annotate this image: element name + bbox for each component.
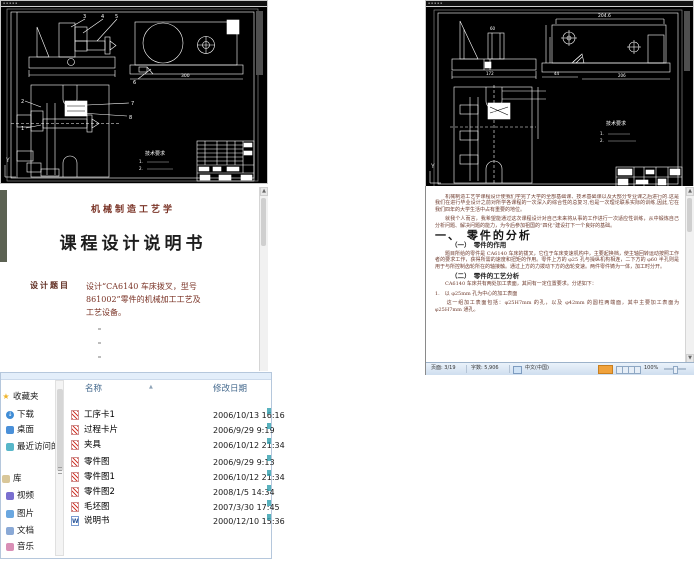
divider bbox=[509, 365, 510, 373]
assembly-drawing-canvas[interactable]: 3 4 5 6 2 1 7 8 300 技术要求 1. 2. Y bbox=[1, 7, 267, 184]
balloon-4: 4 bbox=[101, 14, 104, 20]
file-row[interactable]: 零件图12006/10/12 21:34 bbox=[65, 470, 265, 485]
documents-icon bbox=[6, 527, 14, 535]
list-item: 1. 以 φ25mm 孔为中心的加工表面 bbox=[435, 291, 679, 297]
music-icon bbox=[6, 543, 14, 551]
dim-60: 60 bbox=[490, 26, 496, 31]
word-cover-window[interactable]: 机械制造工艺学 课程设计说明书 设计题目 设计“CA6140 车床拨叉，型号 8… bbox=[0, 186, 268, 372]
part-drawing-canvas[interactable]: 60 204.6 172 44 206 技术要求 1. 2. Y bbox=[426, 7, 693, 190]
paragraph: 这一组加工表面包括：φ25H7mm 的孔，以及 φ42mm 的圆柱两端面，其中主… bbox=[435, 300, 679, 313]
file-name: 零件图 bbox=[84, 455, 110, 470]
dim-172: 172 bbox=[486, 71, 494, 76]
star-icon: ★ bbox=[2, 393, 10, 401]
explorer-toolbar-edge bbox=[1, 373, 271, 380]
topic-label: 设计题目 bbox=[30, 280, 86, 319]
file-row[interactable]: 夹具2006/10/12 21:34 bbox=[65, 438, 265, 453]
sort-caret-icon: ▲ bbox=[149, 384, 153, 390]
file-row[interactable]: W说明书2000/12/10 15:36 bbox=[65, 514, 265, 529]
tech-req-item-2: 2. bbox=[139, 166, 143, 171]
paragraph: 就我个人而言，我希望能通过这次课程设计对自己未来将从事的工作进行一次适应性训练，… bbox=[435, 216, 679, 229]
cad-window-part[interactable]: ▪▪▪▪▪ bbox=[425, 0, 694, 190]
download-icon: ↓ bbox=[6, 411, 14, 419]
explorer-file-list: 名称 ▲ 修改日期 工序卡12006/10/13 16:16 过程卡片2006/… bbox=[65, 380, 265, 556]
balloon-3: 3 bbox=[83, 14, 86, 20]
divider bbox=[466, 365, 467, 373]
paragraph-mark bbox=[98, 314, 101, 316]
tech-req-item-1: 1. bbox=[600, 131, 604, 136]
cad-file-icon bbox=[71, 440, 79, 450]
course-title: 机械制造工艺学 bbox=[10, 202, 256, 215]
explorer-sidebar: ★收藏夹 ↓下载 桌面 最近访问的位置 库 视频 图片 文档 音乐 bbox=[1, 380, 55, 556]
balloon-5: 5 bbox=[115, 14, 118, 20]
topic-line-1: 设计“CA6140 车床拨叉，型号 bbox=[86, 280, 246, 293]
file-date: 2008/1/5 14:34 bbox=[213, 485, 275, 500]
sidebar-scroll-thumb[interactable] bbox=[57, 389, 63, 471]
dim-206: 206 bbox=[618, 73, 626, 78]
scroll-thumb[interactable] bbox=[261, 198, 266, 246]
cad-scrollbar[interactable] bbox=[684, 11, 690, 71]
topic-line-3: 工艺设备。 bbox=[86, 306, 246, 319]
file-name: 零件图2 bbox=[84, 485, 115, 500]
topic-text: 设计“CA6140 车床拨叉，型号 861002”零件的机械加工工艺及 工艺设备… bbox=[86, 280, 246, 319]
sidebar-item-desktop[interactable]: 桌面 bbox=[5, 423, 59, 437]
heading-1: 一、 零件的分析 bbox=[435, 233, 679, 239]
desktop-icon bbox=[6, 426, 14, 434]
word-app-background bbox=[0, 190, 7, 262]
cad-file-icon bbox=[71, 487, 79, 497]
paragraph-mark bbox=[98, 356, 101, 358]
paragraph-mark bbox=[98, 328, 101, 330]
balloon-2: 2 bbox=[21, 99, 24, 105]
recent-places-icon bbox=[6, 443, 14, 451]
title-block bbox=[197, 141, 254, 181]
ucs-y-label: Y bbox=[5, 157, 10, 164]
column-header-date-modified[interactable]: 修改日期 bbox=[213, 382, 247, 396]
library-icon bbox=[2, 475, 10, 483]
sidebar-item-videos[interactable]: 视频 bbox=[5, 489, 59, 503]
scroll-thumb[interactable] bbox=[687, 198, 692, 232]
tech-req-title: 技术要求 bbox=[145, 150, 165, 157]
sidebar-item-recent-places[interactable]: 最近访问的位置 bbox=[5, 440, 59, 454]
videos-icon bbox=[6, 492, 14, 500]
document-page: 机械制造工艺学课程设计使我们学完了大学的全部基础课、技术基础课以及大部分专业课之… bbox=[435, 194, 679, 361]
vertical-scrollbar[interactable]: ▲ ▼ bbox=[685, 187, 694, 363]
sidebar-item-libraries[interactable]: 库 bbox=[1, 472, 55, 486]
file-row[interactable]: 过程卡片2006/9/29 9:19 bbox=[65, 423, 265, 438]
paragraph: 题目所给的零件是 CA6140 车床的拨叉，它位于车床变速机构中，主要起换档，使… bbox=[435, 251, 679, 270]
file-date: 2006/9/29 9:13 bbox=[213, 455, 275, 470]
pictures-icon bbox=[6, 510, 14, 518]
view-outline-icon[interactable] bbox=[634, 366, 641, 374]
sidebar-item-music[interactable]: 音乐 bbox=[5, 540, 59, 554]
file-name: 过程卡片 bbox=[84, 423, 118, 438]
paragraph: CA6140 车床共有两处加工表面，其间有一定位置要求。分述如下： bbox=[435, 281, 679, 287]
file-name: 零件图1 bbox=[84, 470, 115, 485]
desktop: ▪▪▪▪▪ bbox=[0, 0, 694, 561]
zoom-level[interactable]: 100% bbox=[644, 363, 658, 374]
paragraph-mark bbox=[98, 342, 101, 344]
file-name: 工序卡1 bbox=[84, 408, 115, 423]
balloon-7: 7 bbox=[131, 101, 134, 107]
file-row[interactable]: 工序卡12006/10/13 16:16 bbox=[65, 408, 265, 423]
balloon-8: 8 bbox=[129, 115, 132, 121]
dim-300: 300 bbox=[181, 73, 190, 79]
cad-file-icon bbox=[71, 472, 79, 482]
file-name: 毛坯图 bbox=[84, 500, 110, 515]
cover-page: 机械制造工艺学 课程设计说明书 设计题目 设计“CA6140 车床拨叉，型号 8… bbox=[10, 186, 256, 372]
sidebar-item-downloads[interactable]: ↓下载 bbox=[5, 408, 59, 422]
next-column-edge bbox=[267, 380, 271, 556]
heading-2a: （一） 零件的作用 bbox=[451, 242, 679, 248]
file-name: 夹具 bbox=[84, 438, 101, 453]
status-page-count[interactable]: 页面: 3/19 bbox=[431, 363, 456, 374]
zoom-slider-knob[interactable] bbox=[673, 366, 678, 374]
file-row[interactable]: 零件图2006/9/29 9:13 bbox=[65, 455, 265, 470]
sidebar-item-documents[interactable]: 文档 bbox=[5, 524, 59, 538]
status-highlight bbox=[598, 365, 613, 374]
file-date: 2000/12/10 15:36 bbox=[213, 514, 285, 529]
scroll-up-icon[interactable]: ▲ bbox=[686, 187, 694, 196]
cad-file-icon bbox=[71, 425, 79, 435]
cad-scrollbar[interactable] bbox=[256, 11, 263, 75]
dim-204-6: 204.6 bbox=[598, 13, 611, 19]
balloon-1: 1 bbox=[21, 126, 24, 132]
status-word-count[interactable]: 字数: 5,906 bbox=[471, 363, 499, 374]
tech-req-title: 技术要求 bbox=[606, 120, 626, 127]
word-file-icon: W bbox=[71, 516, 79, 526]
sidebar-scrollbar[interactable] bbox=[55, 380, 64, 556]
scroll-up-icon[interactable]: ▲ bbox=[260, 187, 268, 196]
topic-line-2: 861002”零件的机械加工工艺及 bbox=[86, 293, 246, 306]
file-date: 2006/10/13 16:16 bbox=[213, 408, 285, 423]
column-header-name[interactable]: 名称 bbox=[85, 382, 102, 396]
status-language[interactable]: 中文(中国) bbox=[525, 363, 549, 374]
spellcheck-icon[interactable] bbox=[513, 366, 522, 374]
dim-44: 44 bbox=[554, 71, 560, 76]
document-title: 课程设计说明书 bbox=[10, 229, 256, 254]
heading-2b: （二） 零件的工艺分析 bbox=[451, 273, 679, 279]
file-row[interactable]: 毛坯图2007/3/30 17:45 bbox=[65, 500, 265, 515]
file-explorer-window[interactable]: ★收藏夹 ↓下载 桌面 最近访问的位置 库 视频 图片 文档 音乐 名称 ▲ 修… bbox=[0, 372, 272, 559]
file-name: 说明书 bbox=[84, 514, 110, 529]
ucs-y-label: Y bbox=[430, 163, 435, 170]
file-date: 2006/10/12 21:34 bbox=[213, 438, 285, 453]
vertical-scrollbar[interactable]: ▲ bbox=[259, 187, 268, 371]
sidebar-item-pictures[interactable]: 图片 bbox=[5, 507, 59, 521]
cad-file-icon bbox=[71, 410, 79, 420]
sidebar-item-favorites[interactable]: ★收藏夹 bbox=[1, 390, 55, 404]
file-date: 2006/9/29 9:19 bbox=[213, 423, 275, 438]
balloon-6: 6 bbox=[133, 80, 136, 86]
paragraph: 机械制造工艺学课程设计使我们学完了大学的全部基础课、技术基础课以及大部分专业课之… bbox=[435, 194, 679, 213]
word-status-bar: 页面: 3/19 字数: 5,906 中文(中国) 100% bbox=[426, 362, 694, 375]
file-row[interactable]: 零件图22008/1/5 14:34 bbox=[65, 485, 265, 500]
tech-req-item-2: 2. bbox=[600, 138, 604, 143]
cad-file-icon bbox=[71, 502, 79, 512]
tech-req-item-1: 1. bbox=[139, 159, 143, 164]
file-date: 2006/10/12 21:34 bbox=[213, 470, 285, 485]
word-page-window[interactable]: 机械制造工艺学课程设计使我们学完了大学的全部基础课、技术基础课以及大部分专业课之… bbox=[425, 186, 694, 375]
cad-window-assembly[interactable]: ▪▪▪▪▪ bbox=[0, 0, 268, 184]
cad-file-icon bbox=[71, 457, 79, 467]
